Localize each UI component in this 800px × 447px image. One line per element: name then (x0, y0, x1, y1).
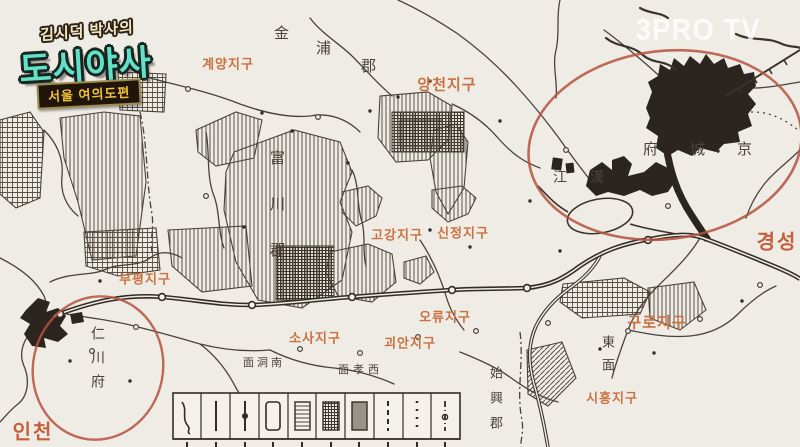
hanja-incheon-bu: 仁川府 (89, 326, 103, 398)
hanja-bucheon-gun: 富川郡 (268, 150, 283, 288)
district-label-sinjeong: 신정지구 (437, 223, 489, 242)
district-label-siheung: 시흥지구 (586, 388, 638, 407)
show-logo-episode-badge: 서울 여의도편 (36, 78, 142, 109)
city-label-incheon: 인천 (13, 416, 54, 445)
district-label-gogang: 고강지구 (371, 225, 423, 244)
map-legend (173, 393, 460, 447)
seoul-urban-blob (646, 54, 756, 156)
hanja-han-river: 江漢 (553, 172, 627, 186)
hanja-namdong-myeon: 面洞南 (243, 358, 285, 369)
channel-watermark: 3PRO TV (636, 14, 761, 47)
hanja-gimpo-1: 金 (274, 27, 289, 42)
hanja-seo-myeon: 面孝西 (338, 365, 383, 376)
district-label-guro: 구로지구 (627, 312, 686, 333)
hanja-siheung-gun: 始興郡 (489, 366, 502, 441)
hanja-dong-myeon: 東面 (601, 335, 614, 381)
hanja-gimpo-3: 郡 (361, 60, 376, 75)
district-label-goean: 괴안지구 (384, 333, 436, 352)
video-frame: 金 浦 郡 富川郡 府城京 江漢 仁川府 始興郡 東面 面洞南 面孝西 계양지구… (0, 0, 800, 447)
district-label-gyeyang: 계양지구 (202, 54, 254, 73)
hanja-gimpo-2: 浦 (316, 42, 331, 57)
city-label-gyeongseong: 경성 (757, 226, 798, 255)
district-label-oryu: 오류지구 (419, 307, 471, 326)
district-label-bupyeong: 부평지구 (119, 269, 171, 288)
incheon-urban-blob (20, 298, 68, 348)
district-label-yangcheon: 양천지구 (417, 74, 476, 95)
hanja-gyeongseong-bu: 府城京 (643, 143, 784, 158)
district-label-sosa: 소사지구 (289, 328, 341, 347)
